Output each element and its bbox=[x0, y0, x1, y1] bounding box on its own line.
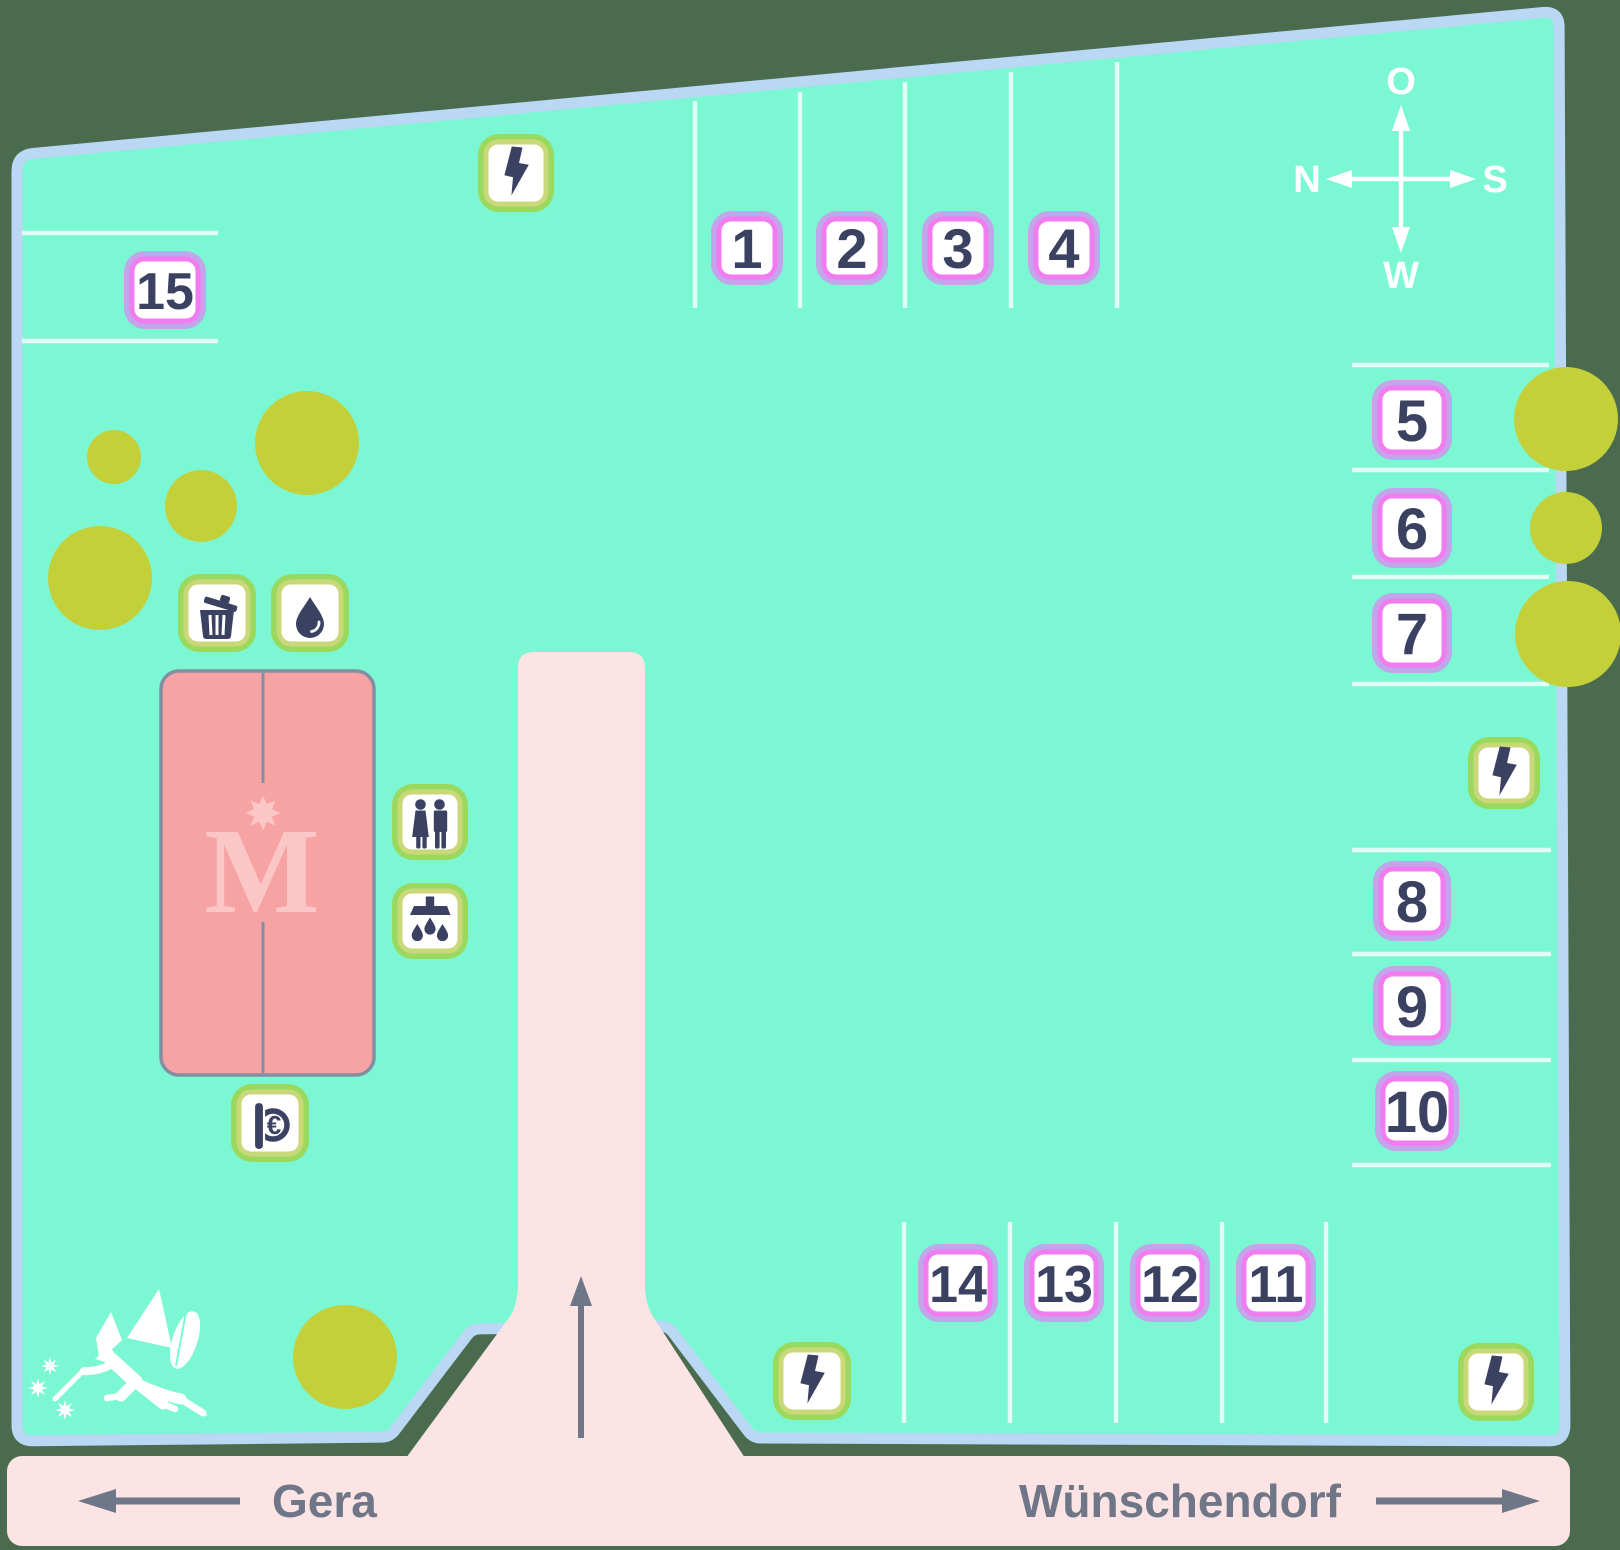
svg-text:Gera: Gera bbox=[272, 1475, 377, 1527]
svg-text:S: S bbox=[1482, 159, 1507, 201]
svg-text:O: O bbox=[1386, 61, 1416, 103]
svg-text:1: 1 bbox=[731, 217, 762, 280]
svg-text:12: 12 bbox=[1141, 1256, 1199, 1314]
svg-text:2: 2 bbox=[836, 217, 867, 280]
svg-text:N: N bbox=[1293, 159, 1320, 201]
svg-text:13: 13 bbox=[1035, 1256, 1093, 1314]
svg-text:Wünschendorf: Wünschendorf bbox=[1019, 1475, 1342, 1527]
svg-text:6: 6 bbox=[1396, 497, 1428, 562]
svg-text:9: 9 bbox=[1396, 975, 1428, 1040]
svg-text:10: 10 bbox=[1385, 1080, 1450, 1145]
svg-text:11: 11 bbox=[1249, 1256, 1304, 1314]
svg-text:8: 8 bbox=[1396, 870, 1428, 935]
svg-text:€: € bbox=[267, 1110, 281, 1140]
svg-text:14: 14 bbox=[929, 1256, 987, 1314]
svg-text:W: W bbox=[1383, 255, 1419, 297]
svg-text:7: 7 bbox=[1396, 602, 1428, 667]
svg-text:15: 15 bbox=[136, 263, 194, 321]
svg-text:3: 3 bbox=[942, 217, 973, 280]
svg-text:4: 4 bbox=[1048, 217, 1079, 280]
svg-text:5: 5 bbox=[1396, 389, 1428, 454]
svg-text:M: M bbox=[204, 804, 319, 939]
